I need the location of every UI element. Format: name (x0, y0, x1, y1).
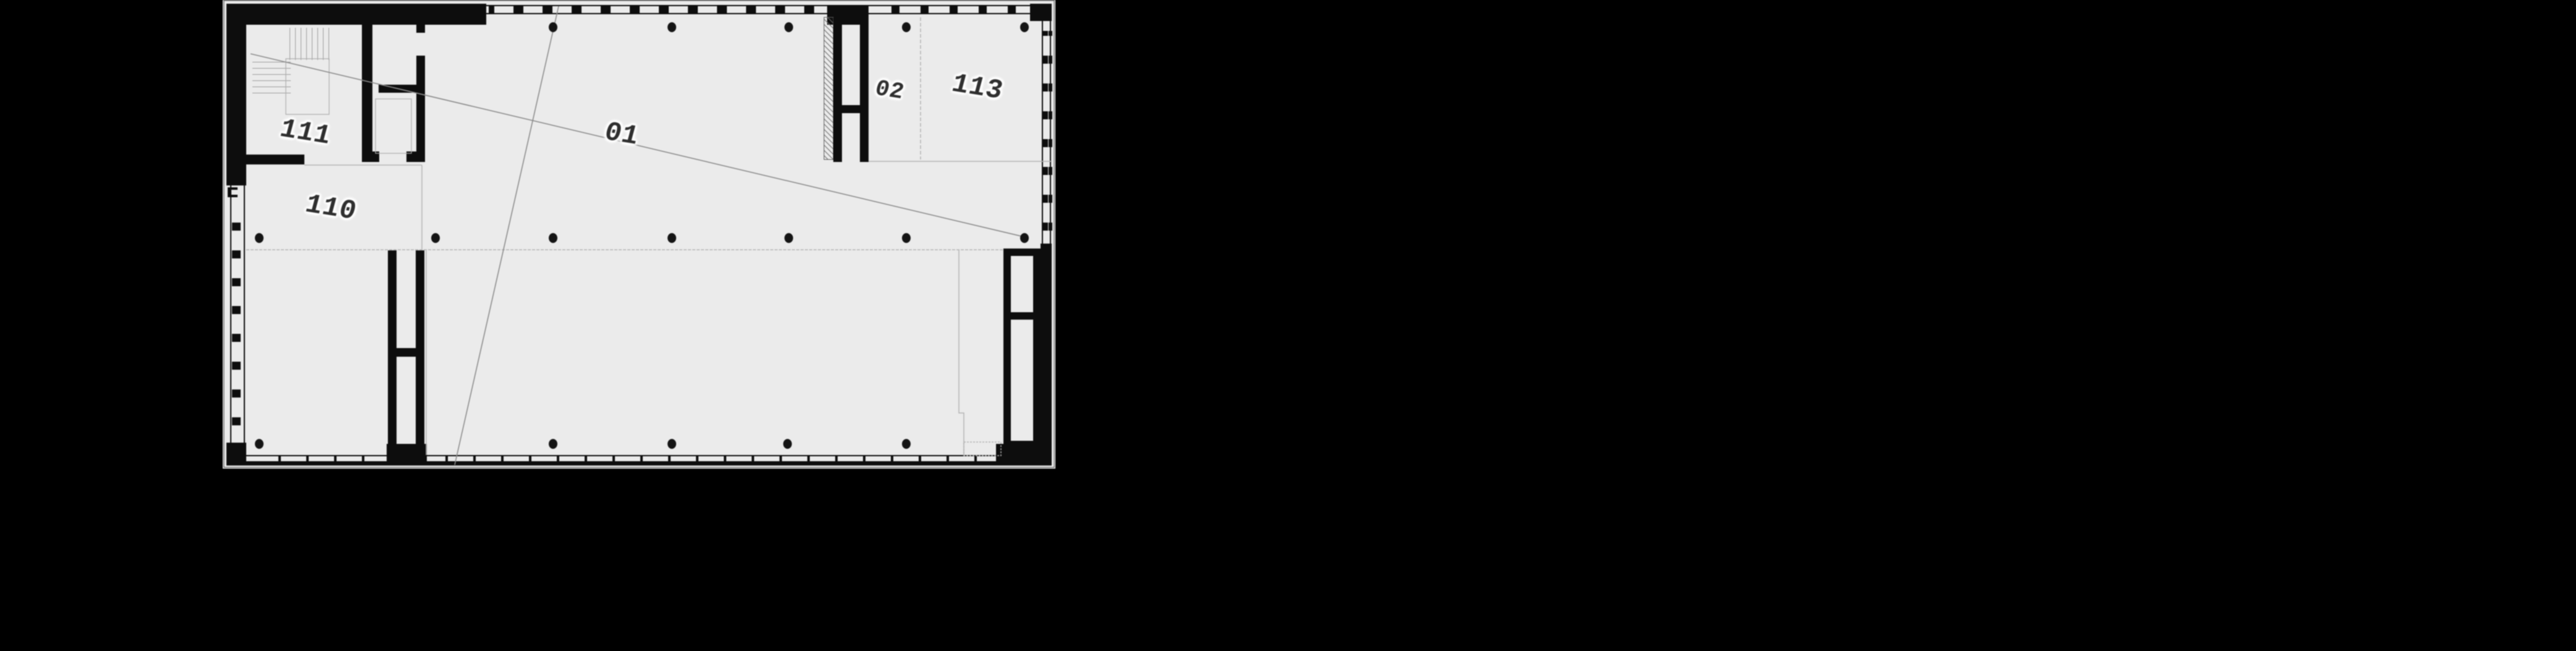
floor-plan: 111 110 01 02 113 (223, 0, 1055, 469)
paper-sheet (223, 0, 1055, 469)
floor-plan-drawing (223, 0, 1055, 469)
right-core (1003, 249, 1041, 456)
page-background: 111 110 01 02 113 (0, 0, 2576, 651)
